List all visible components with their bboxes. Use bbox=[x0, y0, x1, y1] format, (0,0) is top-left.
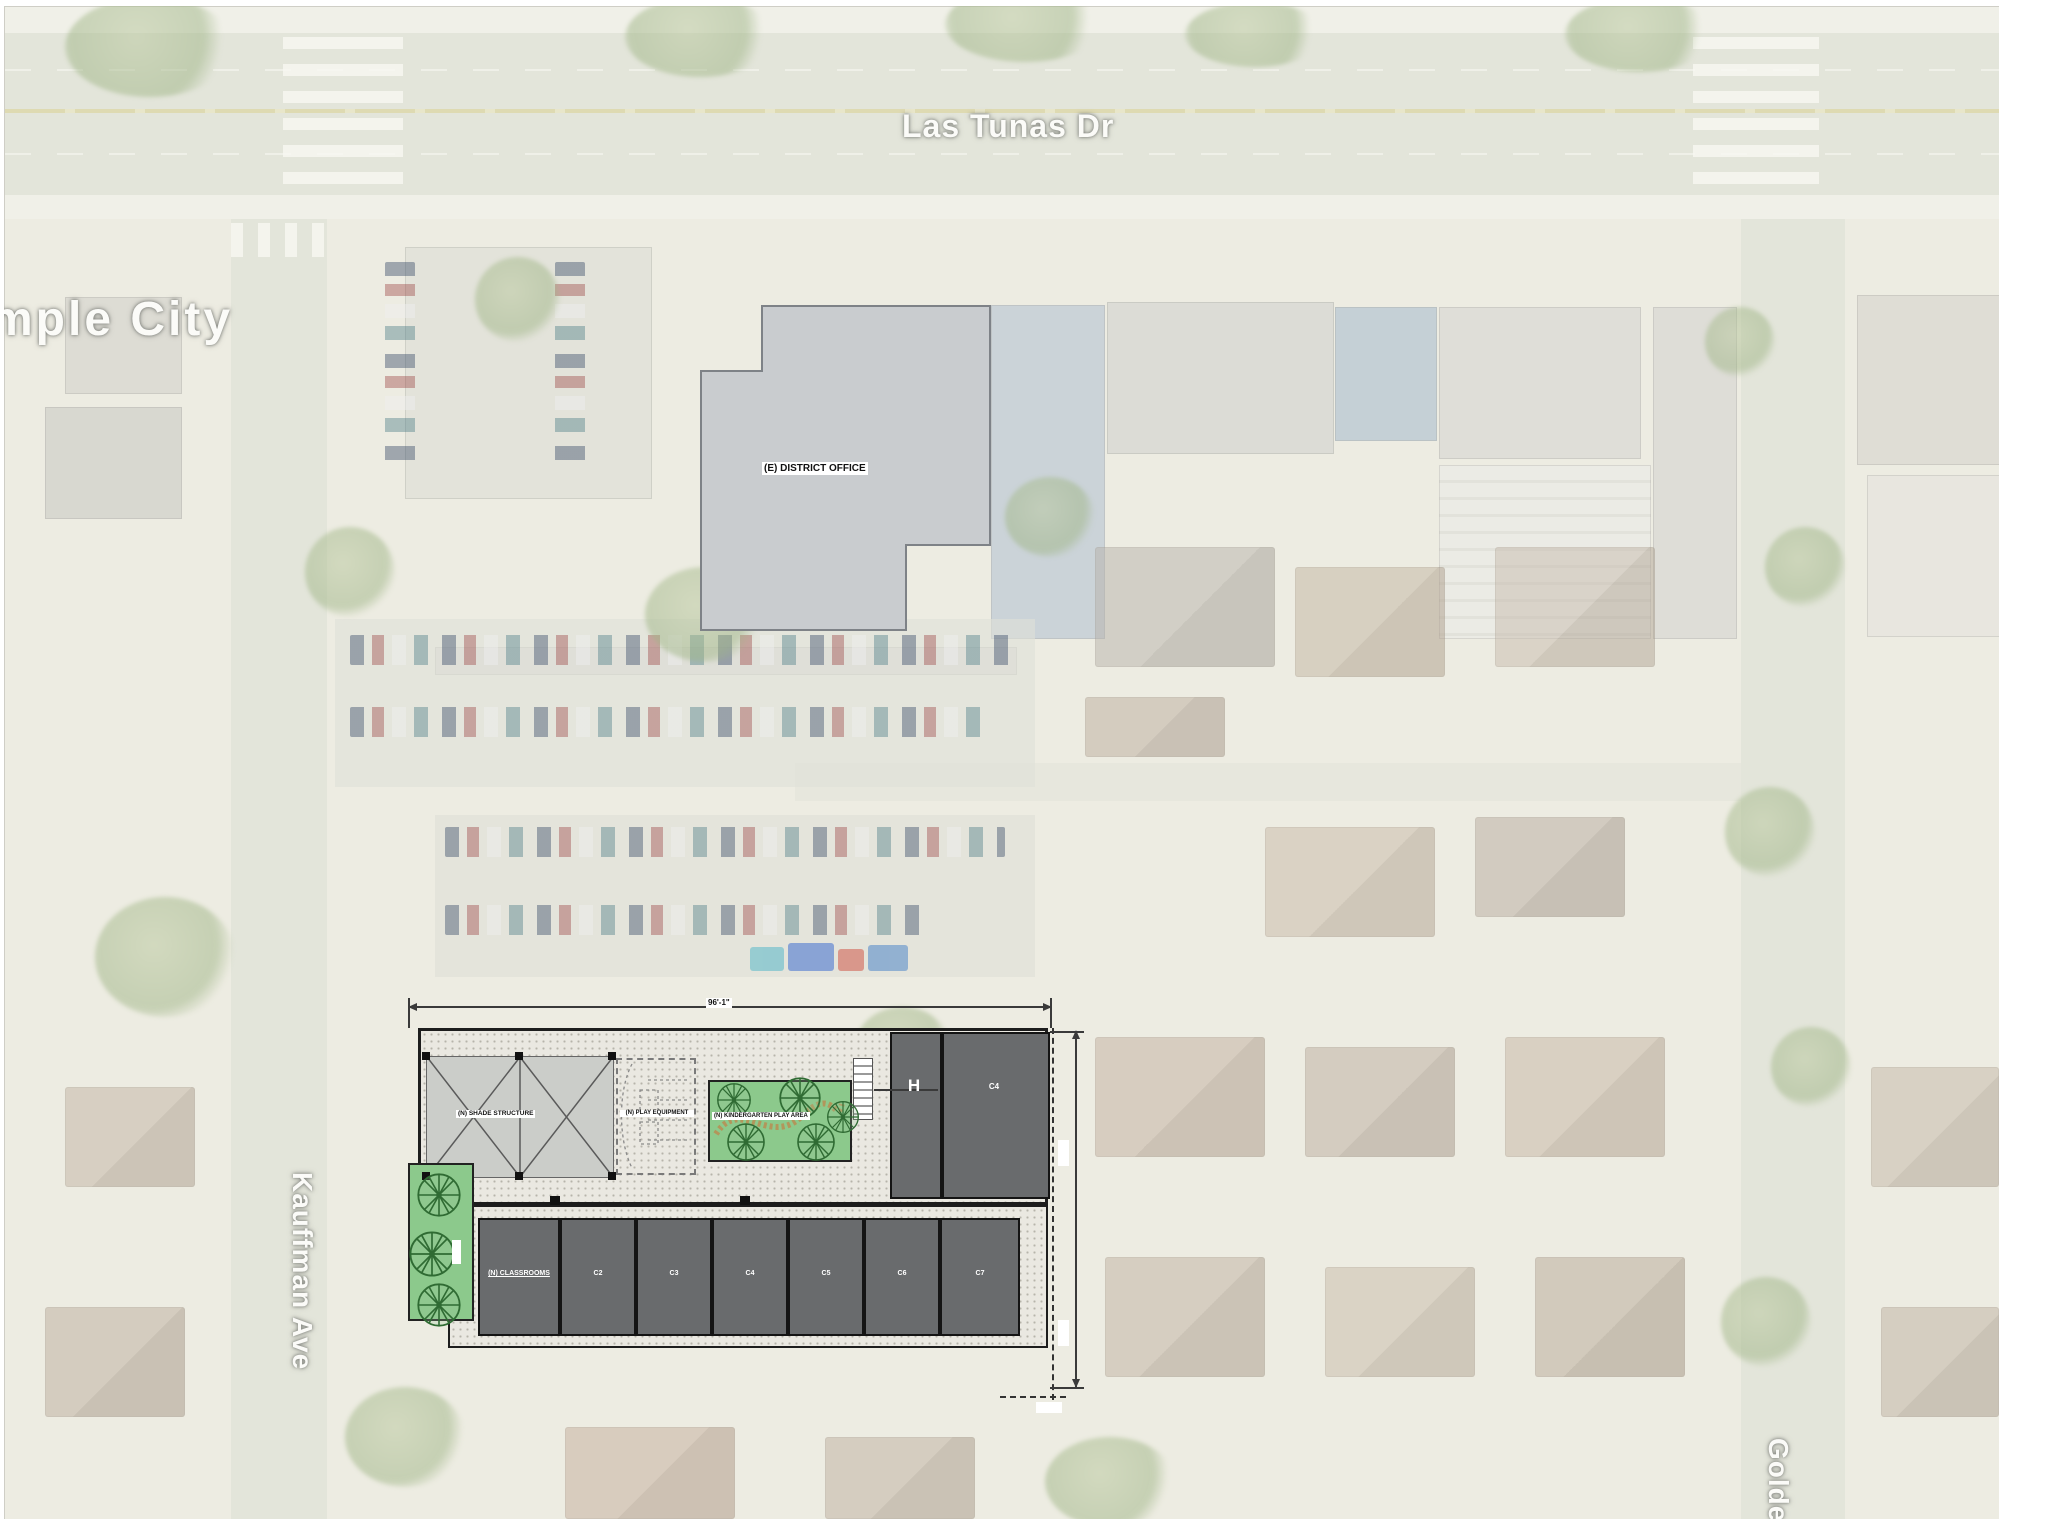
house-roof bbox=[1265, 827, 1435, 937]
crosswalk-east bbox=[1693, 37, 1819, 191]
house-roof bbox=[1881, 1307, 1999, 1417]
house-roof bbox=[1105, 1257, 1265, 1377]
tree-canopy bbox=[1005, 477, 1095, 557]
tree-canopy bbox=[345, 1387, 465, 1487]
tree-canopy bbox=[1725, 787, 1815, 877]
plan-tree-icon bbox=[416, 1282, 462, 1328]
city-label-partial: mple City bbox=[0, 292, 233, 347]
house-roof bbox=[1495, 547, 1655, 667]
building-c bbox=[942, 1032, 1050, 1199]
house-roof bbox=[1305, 1047, 1455, 1157]
page-margin-right bbox=[1999, 0, 2048, 1536]
road-label-kauffman: Kauffman Ave bbox=[286, 1172, 318, 1370]
building-c-label: C4 bbox=[942, 1082, 1046, 1091]
dimension-tick bbox=[1050, 1387, 1084, 1389]
building-roof bbox=[1867, 475, 2001, 637]
shade-post bbox=[422, 1052, 430, 1060]
building-roof-blue bbox=[991, 305, 1105, 639]
crosswalk-west bbox=[283, 37, 403, 191]
shade-post bbox=[515, 1172, 523, 1180]
dimension-note-chip bbox=[1058, 1140, 1069, 1166]
house-roof bbox=[565, 1427, 735, 1519]
house-roof bbox=[825, 1437, 975, 1519]
page-margin-left bbox=[0, 0, 4, 1536]
tree-canopy bbox=[475, 257, 560, 342]
house-roof bbox=[45, 1307, 185, 1417]
parked-cars-row bbox=[445, 905, 925, 935]
district-office-label: (E) DISTRICT OFFICE bbox=[762, 462, 868, 475]
tree-canopy bbox=[1721, 1277, 1811, 1367]
road-label-golden-partial: Golde bbox=[1762, 1438, 1794, 1522]
plan-tree-icon bbox=[726, 1122, 766, 1162]
tree-canopy bbox=[1705, 307, 1775, 377]
house-roof bbox=[1325, 1267, 1475, 1377]
classroom-unit: C2 bbox=[560, 1218, 636, 1336]
play-equipment-label: (N) PLAY EQUIPMENT bbox=[620, 1110, 694, 1117]
shade-post bbox=[608, 1172, 616, 1180]
house-roof bbox=[1085, 697, 1225, 757]
plan-tree-icon bbox=[826, 1100, 860, 1134]
classroom-unit: C3 bbox=[636, 1218, 712, 1336]
door-jamb bbox=[740, 1196, 750, 1205]
tree-canopy bbox=[1185, 2, 1325, 67]
building-roof bbox=[1107, 302, 1334, 454]
shade-post bbox=[515, 1052, 523, 1060]
tree-canopy bbox=[1045, 1437, 1175, 1527]
building-h bbox=[890, 1032, 942, 1199]
classroom-unit: (N) CLASSROOMS bbox=[478, 1218, 560, 1336]
shade-post bbox=[608, 1052, 616, 1060]
tree-canopy bbox=[1565, 0, 1715, 72]
classroom-unit-label: C4 bbox=[714, 1270, 786, 1277]
dimension-note-chip bbox=[1036, 1402, 1062, 1413]
sidewalk-south bbox=[5, 195, 1999, 219]
property-line-east bbox=[1052, 1028, 1054, 1400]
classroom-unit-label: (N) CLASSROOMS bbox=[480, 1270, 558, 1277]
tree-canopy bbox=[95, 897, 235, 1017]
house-roof bbox=[1535, 1257, 1685, 1377]
house-roof bbox=[65, 1087, 195, 1187]
parked-cars-row bbox=[445, 827, 1005, 857]
tree-canopy bbox=[65, 0, 235, 97]
house-roof bbox=[1095, 1037, 1265, 1157]
page-margin-top bbox=[0, 0, 2048, 6]
house-roof bbox=[1475, 817, 1625, 917]
crosswalk-kauffman bbox=[231, 223, 327, 257]
shade-structure-label: (N) SHADE STRUCTURE bbox=[456, 1110, 535, 1118]
plan-tree-icon bbox=[416, 1172, 462, 1218]
building-roof bbox=[45, 407, 182, 519]
tree-canopy bbox=[305, 527, 395, 617]
classroom-unit: C7 bbox=[940, 1218, 1020, 1336]
classroom-unit-label: C6 bbox=[866, 1270, 938, 1277]
dimension-note-chip bbox=[1058, 1320, 1069, 1346]
plan-tree-icon bbox=[408, 1230, 456, 1278]
classroom-unit-label: C7 bbox=[942, 1270, 1018, 1277]
classroom-unit: C6 bbox=[864, 1218, 940, 1336]
house-roof bbox=[1095, 547, 1275, 667]
playground-equipment bbox=[750, 943, 910, 975]
dimension-tick bbox=[1050, 998, 1052, 1028]
road-label-las-tunas: Las Tunas Dr bbox=[902, 108, 1114, 145]
door-jamb bbox=[550, 1196, 560, 1205]
dimension-tick bbox=[1050, 1031, 1084, 1033]
dimension-line-east bbox=[1075, 1032, 1077, 1388]
parked-cars-row bbox=[385, 262, 415, 462]
tree-canopy bbox=[1771, 1027, 1851, 1107]
tree-canopy bbox=[625, 0, 775, 77]
building-roof-blue bbox=[1335, 307, 1437, 441]
classroom-unit-label: C3 bbox=[638, 1270, 710, 1277]
page-margin-bottom bbox=[0, 1519, 2048, 1536]
classroom-unit-label: C5 bbox=[790, 1270, 862, 1277]
classroom-unit: C4 bbox=[712, 1218, 788, 1336]
house-roof bbox=[1505, 1037, 1665, 1157]
strip-note-chip bbox=[452, 1240, 461, 1264]
property-line-south bbox=[1000, 1396, 1066, 1398]
kindergarten-label: (N) KINDERGARTEN PLAY AREA bbox=[712, 1112, 810, 1120]
tree-canopy bbox=[1765, 527, 1845, 607]
building-roof bbox=[1439, 307, 1641, 459]
building-h-label: H bbox=[890, 1076, 938, 1096]
aerial-site-plan-exhibit: (E) DISTRICT OFFICE mple City Las Tunas … bbox=[0, 0, 2048, 1536]
parked-cars-row bbox=[350, 707, 990, 737]
house-roof bbox=[1871, 1067, 1999, 1187]
house-roof bbox=[1295, 567, 1445, 677]
dimension-tick bbox=[408, 998, 410, 1028]
classroom-unit: C5 bbox=[788, 1218, 864, 1336]
classroom-unit-label: C2 bbox=[562, 1270, 634, 1277]
building-roof bbox=[1857, 295, 2001, 465]
dimension-label-top: 96'-1" bbox=[706, 998, 732, 1008]
